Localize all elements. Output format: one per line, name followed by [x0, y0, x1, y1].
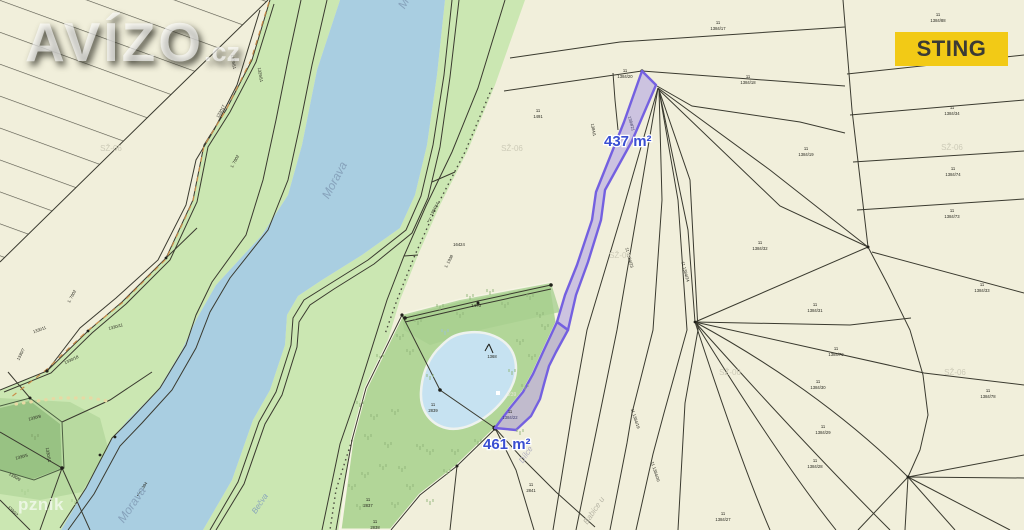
svg-text:1384/29: 1384/29 — [815, 430, 831, 435]
svg-text:11: 11 — [373, 519, 378, 524]
svg-text:1384/88: 1384/88 — [930, 18, 946, 23]
svg-text:11: 11 — [980, 282, 985, 287]
svg-text:11: 11 — [721, 511, 726, 516]
svg-text:1384/27: 1384/27 — [715, 517, 731, 522]
svg-text:1384/79: 1384/79 — [828, 352, 844, 357]
svg-text:1384/78: 1384/78 — [980, 394, 996, 399]
svg-text:239: 239 — [508, 392, 517, 398]
svg-text:437 m²: 437 m² — [604, 133, 652, 150]
svg-text:2838: 2838 — [370, 525, 380, 530]
svg-text:1384/30: 1384/30 — [810, 385, 826, 390]
svg-text:1384/31: 1384/31 — [807, 308, 823, 313]
svg-text:461 m²: 461 m² — [483, 436, 531, 453]
svg-text:2839: 2839 — [428, 408, 438, 413]
svg-text:1384/17: 1384/17 — [710, 26, 726, 31]
svg-text:1384/28: 1384/28 — [807, 464, 823, 469]
svg-text:11: 11 — [936, 12, 941, 17]
svg-text:1384/32: 1384/32 — [752, 246, 768, 251]
svg-text:2837: 2837 — [363, 503, 373, 508]
svg-text:1384/18: 1384/18 — [740, 80, 756, 85]
svg-text:1384/34: 1384/34 — [944, 111, 960, 116]
svg-text:11: 11 — [758, 240, 763, 245]
svg-text:11: 11 — [950, 208, 955, 213]
svg-text:1384/22: 1384/22 — [502, 415, 518, 420]
svg-text:1368: 1368 — [487, 354, 497, 359]
svg-text:1384/19: 1384/19 — [798, 152, 814, 157]
svg-text:SŽ-06: SŽ-06 — [501, 144, 523, 153]
svg-text:1384/20: 1384/20 — [617, 74, 633, 79]
svg-text:11: 11 — [813, 302, 818, 307]
svg-text:11: 11 — [804, 146, 809, 151]
svg-text:11: 11 — [623, 68, 628, 73]
svg-text:SŽ-06: SŽ-06 — [609, 251, 631, 260]
svg-text:1470: 1470 — [471, 303, 482, 308]
svg-text:11: 11 — [821, 424, 826, 429]
svg-text:1384/33: 1384/33 — [974, 288, 990, 293]
svg-text:1384/74: 1384/74 — [945, 172, 961, 177]
svg-text:2841: 2841 — [526, 488, 536, 493]
svg-text:SŽ-06: SŽ-06 — [100, 144, 122, 153]
svg-text:SŽ-06: SŽ-06 — [719, 368, 741, 377]
svg-text:SŽ-06: SŽ-06 — [941, 143, 963, 152]
svg-text:11: 11 — [950, 105, 955, 110]
svg-text:SŽ-06: SŽ-06 — [944, 368, 966, 377]
svg-text:11: 11 — [536, 108, 541, 113]
svg-text:1491: 1491 — [533, 114, 543, 119]
svg-text:11: 11 — [508, 409, 513, 414]
svg-text:11: 11 — [986, 388, 991, 393]
svg-text:11: 11 — [529, 482, 534, 487]
svg-text:11: 11 — [366, 497, 371, 502]
svg-text:11: 11 — [716, 20, 721, 25]
svg-text:11: 11 — [951, 166, 956, 171]
svg-text:11: 11 — [816, 379, 821, 384]
svg-text:1384/73: 1384/73 — [944, 214, 960, 219]
svg-text:11: 11 — [834, 346, 839, 351]
svg-text:11: 11 — [746, 74, 751, 79]
svg-text:11: 11 — [813, 458, 818, 463]
svg-text:16424: 16424 — [453, 242, 465, 247]
svg-text:11: 11 — [431, 402, 436, 407]
